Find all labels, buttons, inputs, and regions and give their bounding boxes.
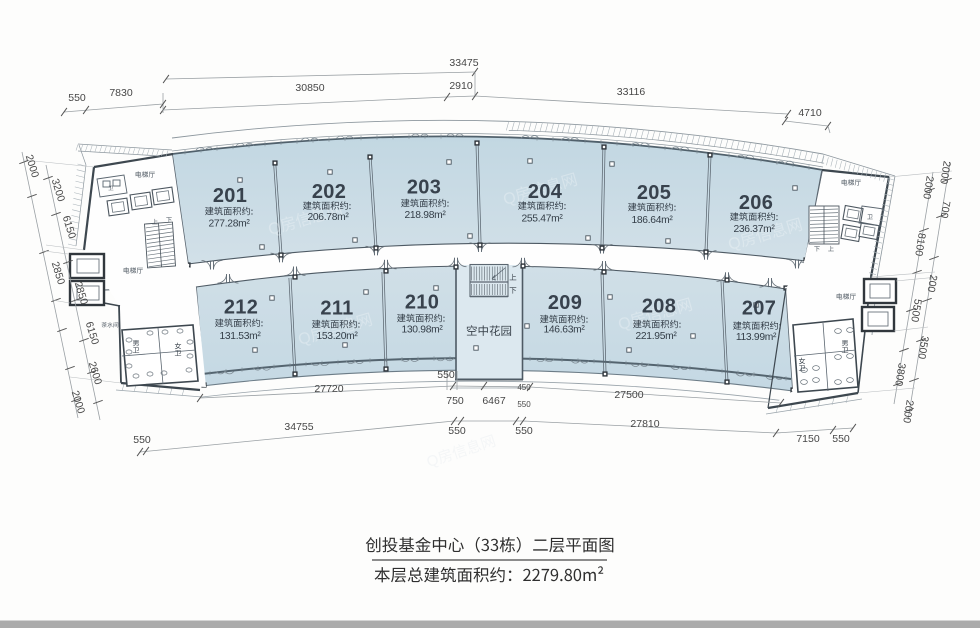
svg-text:130.98m²: 130.98m² [401,324,443,335]
svg-text:186.64m²: 186.64m² [631,215,673,226]
svg-text:550: 550 [515,425,533,437]
svg-text:7830: 7830 [109,87,133,99]
svg-text:7150: 7150 [796,433,820,445]
svg-text:450: 450 [517,383,531,392]
svg-text:34755: 34755 [284,421,313,433]
svg-text:211: 211 [320,298,353,320]
svg-text:208: 208 [642,296,676,318]
svg-text:277.28m²: 277.28m² [208,218,250,229]
svg-text:27810: 27810 [630,418,659,430]
svg-text:204: 204 [528,181,563,203]
svg-text:550: 550 [448,425,466,437]
svg-text:33475: 33475 [449,57,478,69]
svg-text:236.37m²: 236.37m² [733,224,775,235]
svg-text:33116: 33116 [617,86,646,98]
svg-text:113.99m²: 113.99m² [736,332,777,343]
svg-text:201: 201 [213,185,247,207]
svg-text:30850: 30850 [295,82,324,94]
svg-text:205: 205 [637,182,671,204]
svg-text:209: 209 [548,292,582,314]
svg-text:131.53m²: 131.53m² [219,331,261,342]
svg-text:218.98m²: 218.98m² [404,210,446,221]
svg-text:212: 212 [224,297,258,319]
svg-text:207: 207 [742,298,776,320]
svg-text:550: 550 [68,92,86,104]
svg-text:550: 550 [437,369,455,381]
svg-text:750: 750 [446,395,464,407]
svg-text:206.78m²: 206.78m² [307,212,349,223]
svg-text:27720: 27720 [314,383,343,395]
svg-text:146.63m²: 146.63m² [543,324,585,335]
svg-text:153.20m²: 153.20m² [316,331,358,342]
svg-text:550: 550 [517,400,531,409]
svg-text:202: 202 [312,181,346,203]
svg-text:221.95m²: 221.95m² [635,331,677,342]
svg-text:206: 206 [739,192,773,214]
svg-text:2910: 2910 [449,80,473,92]
svg-text:6467: 6467 [482,395,506,407]
svg-text:203: 203 [407,177,441,199]
svg-text:210: 210 [405,292,439,314]
svg-text:550: 550 [832,433,850,445]
svg-text:27500: 27500 [614,389,643,401]
svg-text:550: 550 [133,434,151,446]
svg-text:255.47m²: 255.47m² [521,213,563,224]
svg-text:4710: 4710 [798,107,822,119]
